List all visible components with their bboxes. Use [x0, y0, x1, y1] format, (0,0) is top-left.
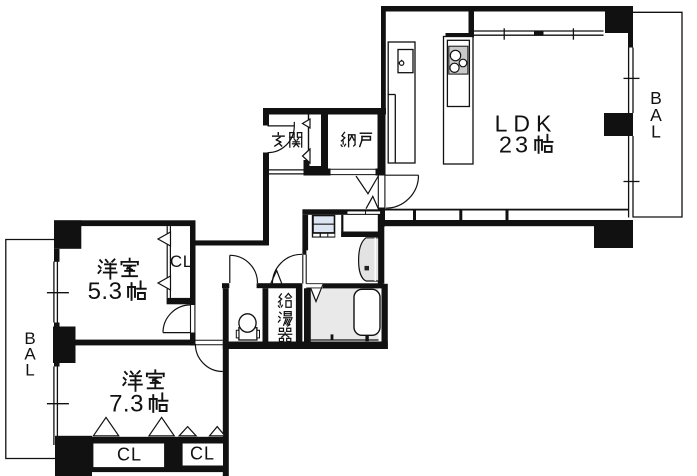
svg-text:5.3: 5.3 [88, 278, 123, 305]
svg-text:23: 23 [499, 131, 531, 157]
svg-text:7.3: 7.3 [109, 391, 144, 418]
svg-text:L: L [651, 122, 661, 142]
svg-text:L: L [25, 361, 34, 380]
svg-text:CL: CL [170, 252, 193, 271]
svg-text:CL: CL [190, 444, 215, 464]
svg-text:CL: CL [117, 444, 142, 464]
